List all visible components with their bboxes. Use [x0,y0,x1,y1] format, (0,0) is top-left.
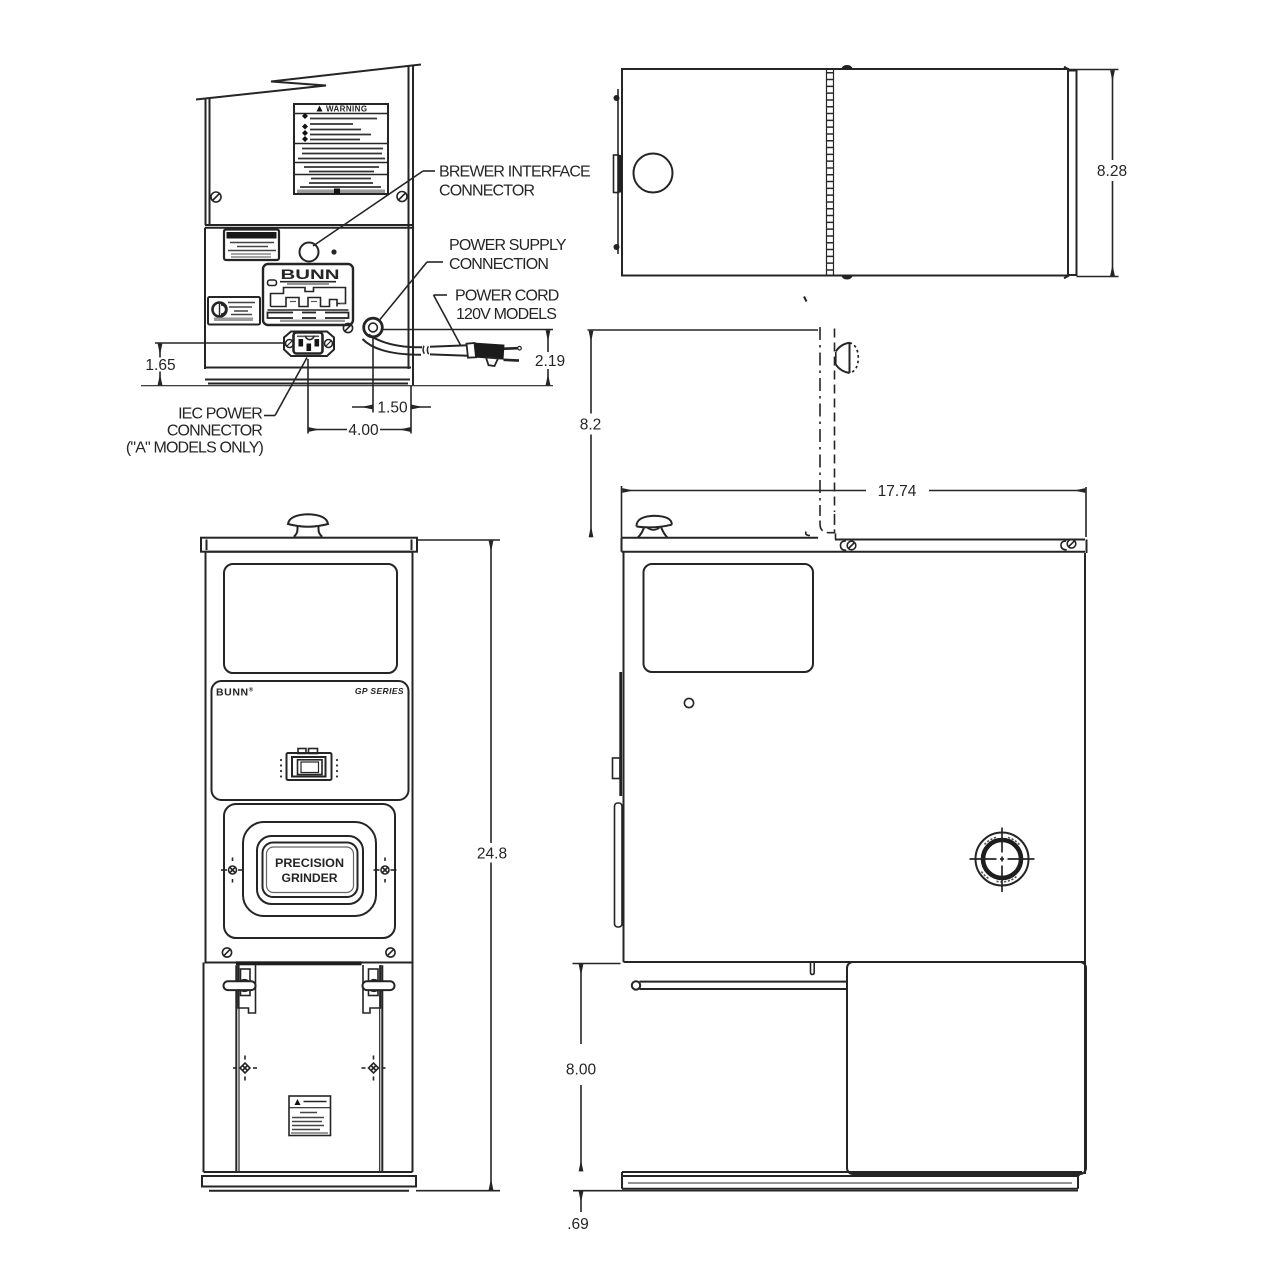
svg-text:8.2: 8.2 [580,416,602,433]
svg-text:BUNN®: BUNN® [216,687,254,699]
svg-text:GRINDER: GRINDER [282,871,338,885]
svg-text:GP SERIES: GP SERIES [355,686,404,696]
svg-text:120V MODELS: 120V MODELS [456,306,556,323]
svg-text:8.00: 8.00 [566,1061,597,1078]
svg-text:1.65: 1.65 [145,357,175,374]
svg-text:CONNECTOR: CONNECTOR [439,183,534,200]
svg-text:.69: .69 [567,1216,589,1233]
svg-text:CONNECTION: CONNECTION [449,256,548,273]
svg-text:POWER CORD: POWER CORD [455,288,559,305]
svg-text:POWER SUPPLY: POWER SUPPLY [449,237,567,254]
svg-text:WARNING: WARNING [326,105,367,114]
svg-text:1.50: 1.50 [377,399,408,416]
svg-text:2.19: 2.19 [535,353,565,370]
svg-text:BUNN: BUNN [281,267,340,282]
svg-text:17.74: 17.74 [878,483,917,500]
svg-text:BREWER INTERFACE: BREWER INTERFACE [439,164,590,181]
svg-text:8.28: 8.28 [1097,163,1127,180]
svg-text:24.8: 24.8 [477,845,507,862]
svg-text:PRECISION: PRECISION [275,856,344,870]
svg-text:("A" MODELS ONLY): ("A" MODELS ONLY) [126,440,264,457]
svg-text:4.00: 4.00 [348,422,379,439]
svg-text:CONNECTOR: CONNECTOR [167,423,262,440]
svg-text:IEC POWER: IEC POWER [178,406,262,423]
